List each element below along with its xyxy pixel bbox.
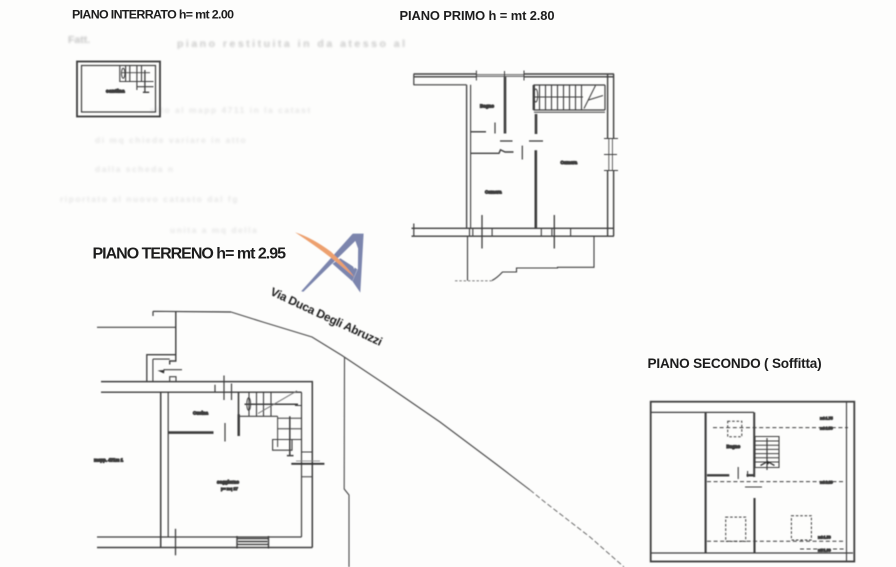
- svg-text:Via Duca Degli Abruzzi: Via Duca Degli Abruzzi: [268, 285, 384, 349]
- svg-text:Fatt.: Fatt.: [68, 34, 90, 46]
- svg-text:PIANO SECONDO ( Soffitta): PIANO SECONDO ( Soffitta): [648, 356, 822, 371]
- svg-text:PIANO INTERRATO h= mt 2.00: PIANO INTERRATO h= mt 2.00: [72, 8, 234, 22]
- svg-text:di mq chiede variare in at: di mq chiede variare in atto: [95, 135, 247, 145]
- svg-text:unita a mq della: unita a mq della: [170, 225, 258, 235]
- svg-text:mapp. 471m 1: mapp. 471m 1: [94, 458, 124, 463]
- svg-text:Cucina: Cucina: [193, 411, 209, 416]
- svg-text:soggiorno: soggiorno: [217, 480, 239, 485]
- svg-text:Camera: Camera: [561, 160, 578, 165]
- svg-text:p= mq 27: p= mq 27: [221, 486, 239, 491]
- svg-text:PIANO PRIMO h = mt 2.80: PIANO PRIMO h = mt 2.80: [400, 8, 555, 23]
- svg-text:mt 1.75: mt 1.75: [820, 417, 833, 421]
- svg-text:mt 1.50: mt 1.50: [820, 427, 833, 431]
- svg-text:Camera: Camera: [485, 190, 502, 195]
- svg-text:dalla scheda n: dalla scheda n: [95, 164, 175, 174]
- svg-text:Bagno: Bagno: [727, 444, 741, 449]
- svg-text:sito al mapp 4711 in la catas: sito al mapp 4711 in la catast: [150, 105, 312, 115]
- svg-text:piano restituita in da atesso: piano restituita in da atesso al: [177, 38, 408, 50]
- svg-text:mt 1.00: mt 1.00: [818, 549, 831, 553]
- svg-text:PIANO TERRENO h= mt 2.95: PIANO TERRENO h= mt 2.95: [93, 246, 287, 263]
- svg-text:cantina: cantina: [106, 89, 125, 95]
- svg-text:mt 2.20: mt 2.20: [820, 481, 833, 485]
- svg-text:riportato al nuovo catasto: riportato al nuovo catasto dal fg: [60, 194, 239, 204]
- svg-text:mt 1.50: mt 1.50: [818, 536, 831, 540]
- svg-text:Bagno: Bagno: [480, 104, 494, 109]
